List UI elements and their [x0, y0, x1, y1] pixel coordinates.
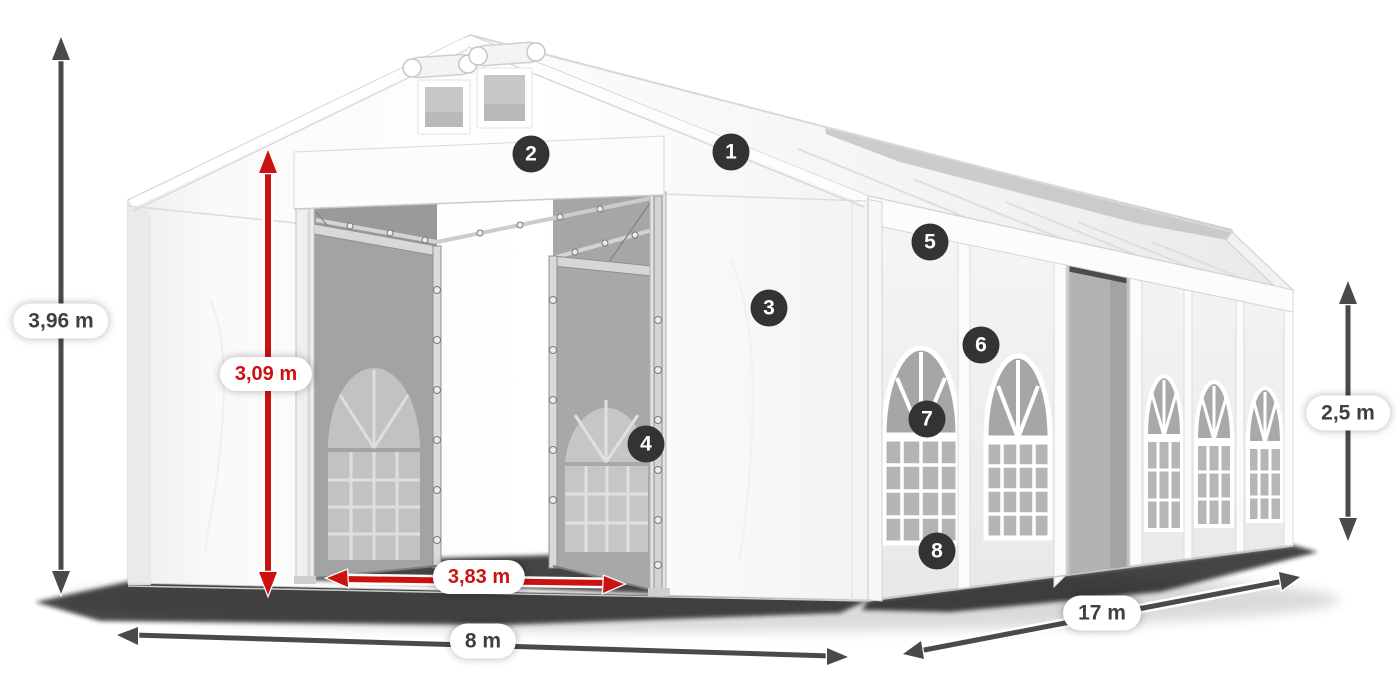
side-window: [1196, 382, 1232, 526]
gable-window-right: [477, 68, 532, 128]
dimension-label-total-height: 3,96 m: [13, 304, 108, 339]
entrance-right-door: [549, 256, 652, 590]
part-marker-8[interactable]: 8: [919, 533, 956, 570]
part-marker-3[interactable]: 3: [751, 290, 788, 327]
part-marker-5[interactable]: 5: [912, 224, 949, 261]
side-window: [986, 356, 1050, 538]
side-window: [884, 348, 958, 543]
part-marker-7[interactable]: 7: [909, 401, 946, 438]
dimension-label-entrance-width: 3,83 m: [433, 560, 525, 594]
front-left-corner-shade: [128, 200, 150, 585]
dimension-label-side-length: 17 m: [1063, 596, 1141, 631]
part-marker-1[interactable]: 1: [713, 134, 750, 171]
dimension-label-side-wall-height: 2,5 m: [1306, 396, 1390, 431]
dimension-label-entrance-height: 3,09 m: [220, 357, 312, 391]
part-marker-4[interactable]: 4: [628, 426, 665, 463]
dimension-label-front-width: 8 m: [450, 624, 516, 659]
entrance-left-post: [294, 206, 316, 584]
side-door-opening: [1066, 253, 1130, 575]
side-window: [1248, 388, 1282, 521]
part-marker-2[interactable]: 2: [513, 136, 550, 173]
entrance-left-door: [314, 224, 441, 578]
part-marker-6[interactable]: 6: [963, 327, 1000, 364]
side-window: [1146, 376, 1182, 530]
tent-dimensions-diagram: 3,96 m 3,09 m 3,83 m 8 m 17 m 2,5 m 1 2 …: [0, 0, 1400, 700]
gable-window-left: [418, 80, 470, 134]
tent-illustration: [0, 0, 1400, 700]
